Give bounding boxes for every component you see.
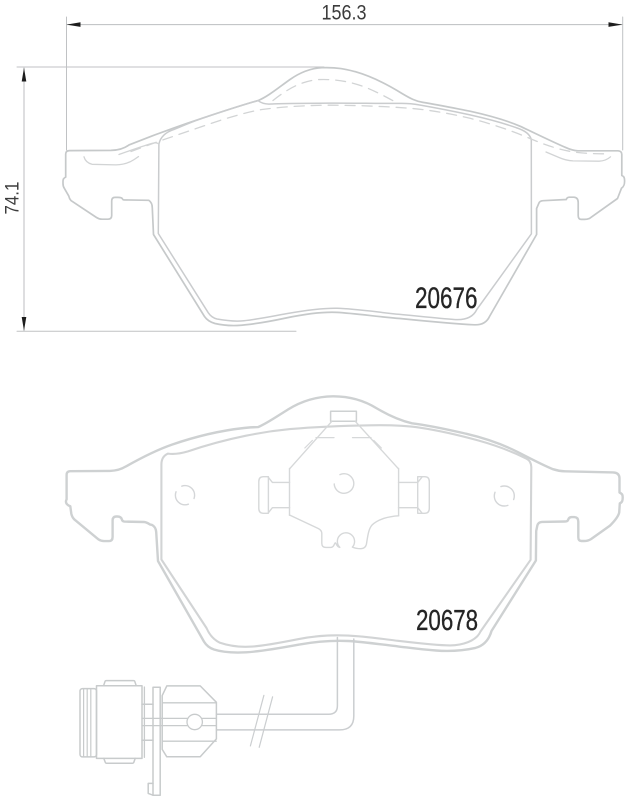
svg-text:20676: 20676 — [415, 281, 478, 315]
svg-text:20678: 20678 — [416, 605, 478, 636]
svg-text:156.3: 156.3 — [322, 1, 367, 25]
svg-text:74.1: 74.1 — [2, 182, 23, 215]
